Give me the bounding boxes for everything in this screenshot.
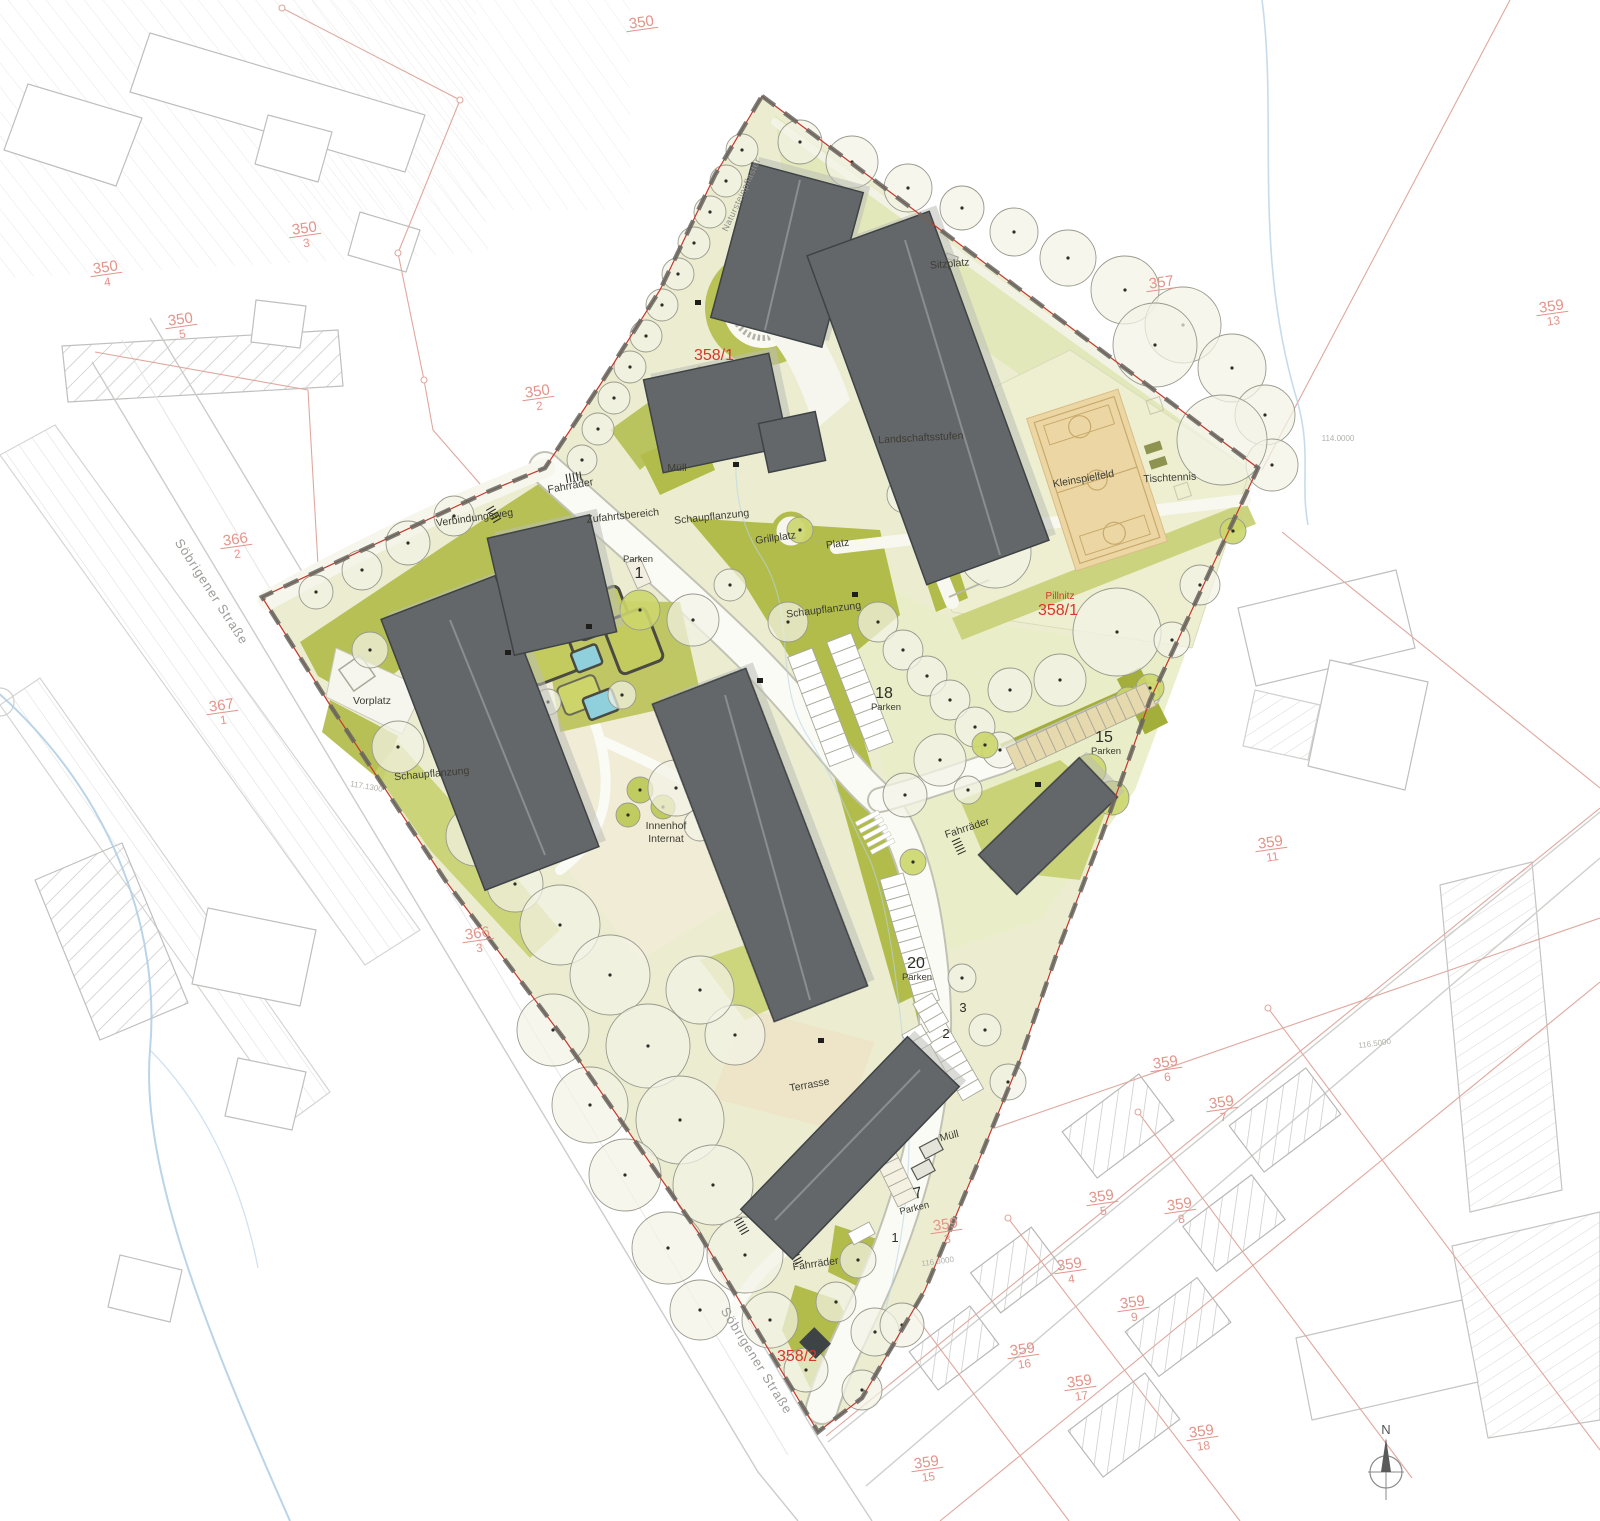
parcel-359-16-label: 35916 [1005,1339,1041,1373]
site-plan-canvas: N FahrräderVerbindungswegZufahrtsbereich… [0,0,1600,1521]
flurstueck-358-2-label: 358/2 [777,1348,817,1365]
parcel-359-5-label: 3595 [1084,1186,1120,1220]
tree-canopy [1034,654,1086,706]
tree-canopy [299,575,333,609]
muell-top-label: Müll [667,462,686,474]
parcel-359-11-label: 35911 [1253,832,1289,866]
parken-18-word: Parken [871,702,901,713]
parcel-359-18-label: 35918 [1184,1421,1220,1455]
svg-text:2: 2 [535,398,544,413]
tree-canopy [969,1014,1001,1046]
flurstueck-358-1-mid-label: 358/1 [1038,602,1078,619]
parcel-350-2-label: 3502 [520,381,556,415]
svg-text:4: 4 [103,274,112,289]
tree-canopy [914,734,966,786]
stall-digit-3: 3 [959,1000,966,1015]
tree-canopy [954,776,982,804]
tree-olive [616,803,640,827]
svg-text:5: 5 [1099,1203,1108,1218]
tree-canopy [988,668,1032,712]
parken-20-word: Parken [902,972,932,983]
parcel-350-label: 350 [624,12,658,33]
tree-canopy [567,445,597,475]
stall-digit-1: 1 [891,1230,898,1245]
tree-canopy [352,632,388,668]
north-arrow-label: N [1381,1422,1390,1437]
parken-15-count: 15 [1095,729,1113,746]
flurstueck-358-1-top-label: 358/1 [694,347,734,364]
pillnitz-label: Pillnitz [1046,591,1075,602]
parcel-359-15-label: 35915 [909,1452,945,1486]
tree-canopy [570,935,650,1015]
tree-canopy [714,569,746,601]
tree-canopy [372,721,424,773]
parken-18-count: 18 [875,685,893,702]
tree-canopy [1113,303,1197,387]
tree-canopy [606,1004,690,1088]
context-buildings-farright [1296,862,1600,1438]
svg-text:17: 17 [1074,1388,1089,1404]
svg-text:18: 18 [1196,1438,1211,1454]
tree-canopy [667,594,719,646]
tree-canopy [840,1242,876,1278]
tree-canopy [598,382,630,414]
tree-canopy [990,208,1038,256]
svg-text:9: 9 [1130,1309,1139,1324]
site-plan-drawing: N FahrräderVerbindungswegZufahrtsbereich… [0,0,1600,1521]
tree-canopy [608,681,636,709]
tree-canopy [589,1139,661,1211]
tree-canopy [883,773,927,817]
tree-canopy [694,196,726,228]
innenhof-line2-label: Internat [648,833,684,845]
tree-olive [620,590,660,630]
parcel-359-13-label: 35913 [1534,296,1570,330]
tree-canopy [1073,588,1161,676]
stall-digit-2: 2 [942,1026,949,1041]
elev-114-0000: 114.0000 [1322,434,1355,443]
tree-canopy [1040,230,1096,286]
tree-canopy [582,413,614,445]
tree-canopy [632,1212,704,1284]
svg-text:13: 13 [1546,313,1561,329]
svg-text:7: 7 [1219,1109,1228,1124]
vorplatz-label: Vorplatz [353,695,391,707]
svg-text:16: 16 [1017,1356,1032,1372]
parcel-359-17-label: 35917 [1062,1371,1098,1405]
parken-15-word: Parken [1091,746,1121,757]
tree-canopy [630,320,662,352]
svg-text:15: 15 [921,1469,936,1485]
tree-canopy [666,956,734,1024]
parcel-366-2-label: 3662 [218,529,254,563]
parken-20-count: 20 [907,955,925,972]
svg-text:6: 6 [1163,1069,1172,1084]
svg-text:4: 4 [1067,1271,1076,1286]
north-arrow-pointer [1381,1438,1391,1472]
tree-canopy [1180,565,1220,605]
tree-canopy [386,521,430,565]
tree-canopy [948,964,976,992]
svg-text:5: 5 [178,326,187,341]
parken-1-top-word: Parken [623,554,653,565]
tree-olive [972,732,998,758]
elev-116-5000: 116.5000 [1358,1037,1392,1051]
svg-text:3: 3 [475,940,484,955]
innenhof-line1-label: Innenhof [646,820,687,832]
parken-1-top-count: 1 [635,565,644,582]
parcel-359-6-label: 3596 [1148,1052,1184,1086]
svg-text:2: 2 [233,546,242,561]
svg-text:3: 3 [943,1231,952,1246]
tree-olive [900,849,926,875]
tree-canopy [778,120,822,164]
svg-text:11: 11 [1265,849,1280,865]
tree-canopy [940,186,984,230]
tree-canopy [816,1282,856,1322]
